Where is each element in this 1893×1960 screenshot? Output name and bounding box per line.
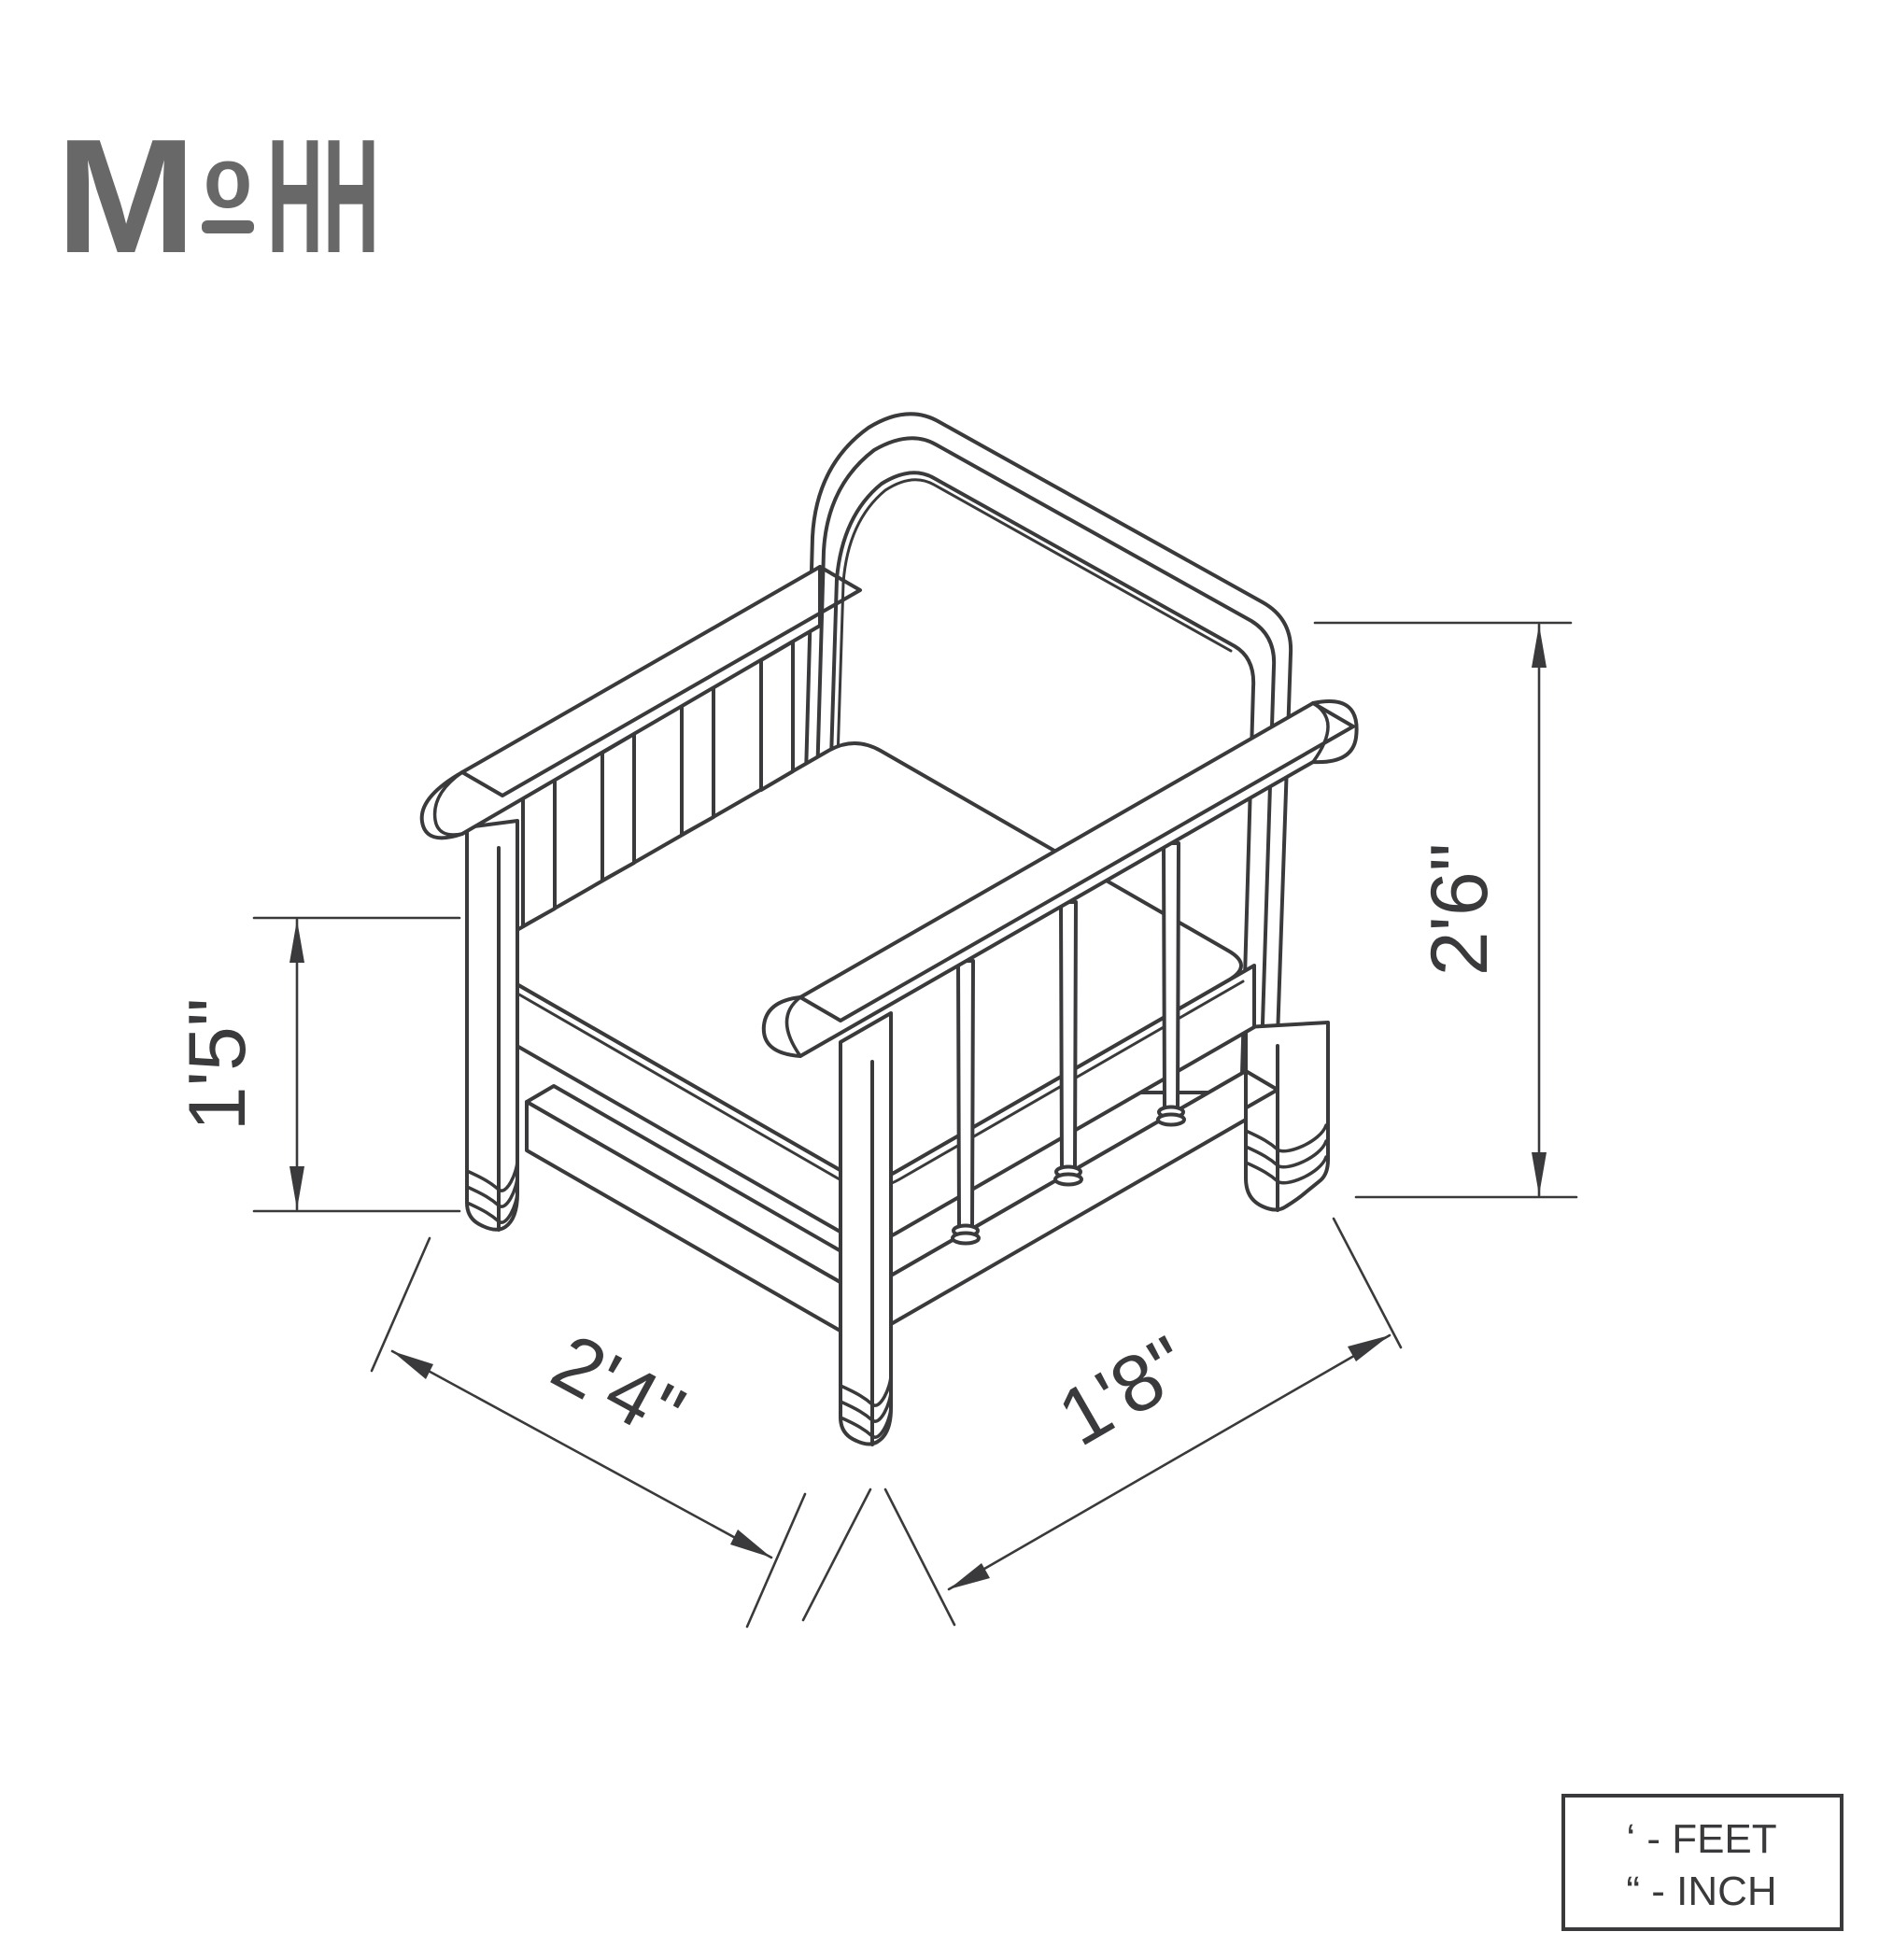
chair-front-center-leg (841, 1013, 891, 1445)
legend-inch-label: “ - INCH (1626, 1868, 1776, 1914)
dimension-overall-width: 2'4" (372, 1238, 805, 1627)
left-slat (602, 734, 634, 881)
extension-line (372, 1238, 430, 1371)
spindle-body (1061, 902, 1076, 1168)
overall-height-label: 2'6" (1415, 843, 1505, 977)
arrowhead-down (290, 1166, 304, 1209)
logo-letters-hh: HH (267, 105, 379, 287)
dimension-overall-height: 2'6" (1315, 623, 1576, 1197)
brand-logo: M o HH (56, 105, 379, 287)
arrowhead-left (392, 1351, 433, 1379)
left-slat (682, 687, 713, 835)
arrowhead-left (949, 1563, 990, 1589)
overall-width-label: 2'4" (538, 1317, 698, 1459)
spindle-foot-ring (1158, 1115, 1184, 1125)
legend-box: ‘ - FEET “ - INCH (1563, 1796, 1842, 1929)
chair-dimension-diagram: M o HH (0, 0, 1893, 1960)
dimension-seat-height: 1'5" (173, 918, 459, 1211)
arrowhead-right (730, 1530, 771, 1558)
arrowhead-up (290, 920, 304, 963)
front-left-leg-outline (467, 821, 517, 1230)
logo-underline (202, 220, 254, 233)
spindle-body (958, 961, 973, 1227)
front-center-leg-outline (841, 1013, 891, 1445)
seat-height-label: 1'5" (173, 998, 262, 1132)
extension-line (885, 1489, 954, 1625)
spindle-foot-ring (953, 1234, 979, 1244)
dimension-overall-depth: 1'8" (949, 1219, 1401, 1589)
left-slat (523, 780, 555, 926)
chair-drawing (422, 414, 1357, 1445)
extension-line (1334, 1219, 1401, 1347)
arrowhead-down (1532, 1152, 1547, 1195)
extension-line (747, 1494, 805, 1627)
arrowhead-right (1348, 1335, 1390, 1361)
chair-front-left-leg (467, 821, 517, 1230)
spindle-foot-ring (1055, 1175, 1081, 1185)
left-slat (761, 642, 793, 790)
extension-line (803, 1489, 870, 1620)
arrowhead-up (1532, 625, 1547, 668)
chair-back-right-leg (1246, 1022, 1328, 1210)
overall-depth-label: 1'8" (1044, 1319, 1205, 1463)
logo-letter-m: M (56, 105, 196, 287)
logo-letter-o: o (204, 131, 252, 226)
diagram-page: M o HH (0, 0, 1893, 1960)
legend-feet-label: ‘ - FEET (1626, 1816, 1776, 1862)
spindle-body (1164, 843, 1179, 1108)
